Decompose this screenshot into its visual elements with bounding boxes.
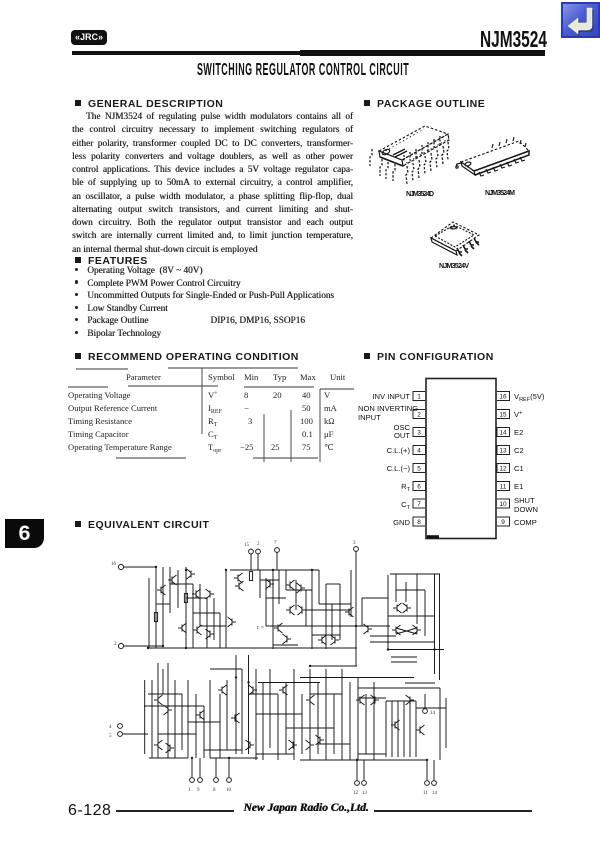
svg-text:V: V [324,390,331,400]
svg-text:Timing Resistance: Timing Resistance [68,416,132,426]
svg-text:kΩ: kΩ [324,416,335,426]
svg-text:3: 3 [353,541,356,546]
svg-text:NON INVERTING: NON INVERTING [358,404,418,413]
svg-text:Timing Capacitor: Timing Capacitor [68,429,129,439]
svg-text:1: 1 [417,394,421,401]
svg-text:mA: mA [324,403,338,413]
svg-text:15: 15 [499,412,507,419]
svg-text:Operating Voltage: Operating Voltage [68,390,131,400]
svg-text:COMP: COMP [514,518,537,527]
svg-text:1: 1 [188,788,191,793]
svg-text:8: 8 [417,519,421,526]
svg-text:Output Reference Current: Output Reference Current [68,403,158,413]
svg-text:2: 2 [257,542,260,547]
svg-text:V+: V+ [208,390,218,400]
svg-text:10: 10 [499,501,507,508]
svg-text:C.L.(+): C.L.(+) [387,446,411,455]
svg-text:9: 9 [501,519,505,526]
svg-text:SHUT: SHUT [514,496,535,505]
svg-text:4: 4 [109,725,112,730]
svg-text:E2: E2 [514,428,523,437]
svg-text:Min: Min [244,372,259,382]
svg-text:14: 14 [432,791,438,796]
svg-text:−25: −25 [240,442,253,452]
svg-text:50: 50 [302,403,311,413]
svg-text:Parameter: Parameter [126,372,161,382]
svg-text:8: 8 [244,390,248,400]
svg-text:12: 12 [499,466,507,473]
svg-text:100: 100 [300,416,313,426]
svg-text:11: 11 [423,791,428,796]
svg-text:11: 11 [500,484,507,491]
svg-text:INV INPUT: INV INPUT [372,392,410,401]
svg-text:0.1: 0.1 [302,429,313,439]
svg-text:μF: μF [324,429,334,439]
svg-text:6: 6 [417,484,421,491]
svg-text:NJM3524D: NJM3524D [406,191,434,198]
svg-text:E1: E1 [514,482,523,491]
svg-text:Symbol: Symbol [208,372,235,382]
svg-text:Operating Temperature Range: Operating Temperature Range [68,442,172,452]
svg-text:RT: RT [208,416,218,428]
svg-text:9: 9 [197,788,200,793]
svg-text:13: 13 [362,791,368,796]
svg-text:7: 7 [274,541,277,546]
svg-text:2: 2 [114,642,117,647]
svg-text:OUT: OUT [394,431,410,440]
svg-text:NJM3524M: NJM3524M [485,190,515,197]
svg-text:20: 20 [273,390,282,400]
svg-text:16: 16 [111,562,117,567]
svg-text:Unit: Unit [330,372,346,382]
svg-text:14: 14 [499,430,507,437]
svg-text:3: 3 [417,430,421,437]
svg-text:8: 8 [213,788,216,793]
svg-text:CT: CT [208,429,218,441]
svg-text:GND: GND [393,518,410,527]
svg-text:7: 7 [417,501,421,508]
svg-text:INPUT: INPUT [358,413,381,422]
svg-text:25: 25 [271,442,280,452]
svg-text:RT: RT [401,482,410,493]
svg-text:VREF(5V): VREF(5V) [514,392,545,403]
svg-text:5: 5 [109,734,112,739]
svg-text:C.L.(−): C.L.(−) [387,464,411,473]
svg-text:75: 75 [302,442,311,452]
svg-text:12: 12 [353,791,359,796]
svg-text:4: 4 [417,448,421,455]
svg-text:Typ: Typ [273,372,286,382]
svg-text:NJM3524V: NJM3524V [439,263,469,270]
svg-text:13: 13 [499,448,507,455]
svg-text:16: 16 [499,394,507,401]
svg-text:10: 10 [226,788,232,793]
svg-text:3: 3 [248,416,252,426]
svg-text:V+: V+ [514,410,522,419]
svg-text:℃: ℃ [324,442,334,452]
svg-text:15: 15 [244,543,250,548]
svg-text:r =: r = [257,625,264,631]
svg-text:IREF: IREF [208,403,223,415]
svg-text:C1: C1 [514,464,524,473]
svg-text:40: 40 [302,390,311,400]
svg-text:5: 5 [417,466,421,473]
svg-text:14: 14 [430,711,436,716]
svg-text:Max: Max [300,372,316,382]
svg-text:C2: C2 [514,446,524,455]
svg-text:Topr: Topr [208,442,221,454]
svg-text:DOWN: DOWN [514,505,538,514]
svg-text:−: − [244,403,249,413]
svg-text:CT: CT [401,500,410,511]
